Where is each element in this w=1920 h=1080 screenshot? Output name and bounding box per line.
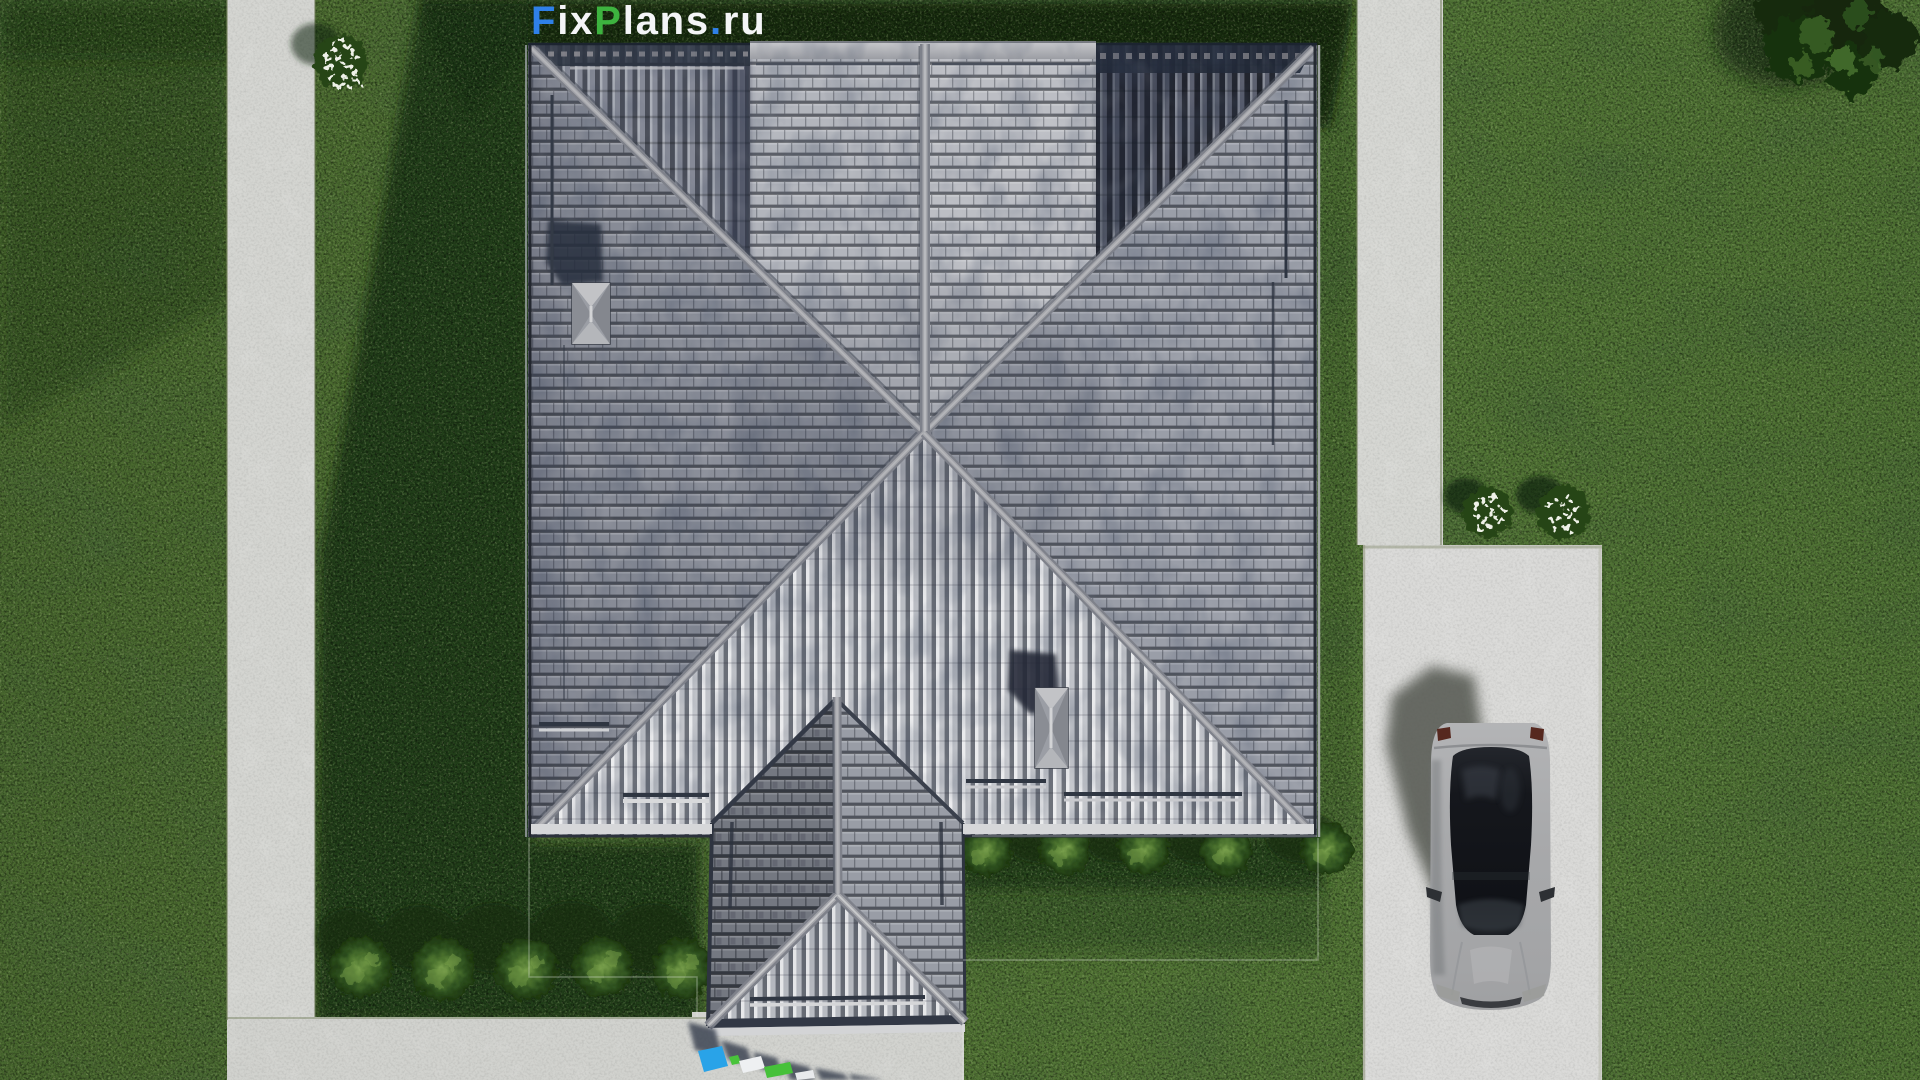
svg-text:FixPlans.ru: FixPlans.ru	[531, 0, 766, 43]
